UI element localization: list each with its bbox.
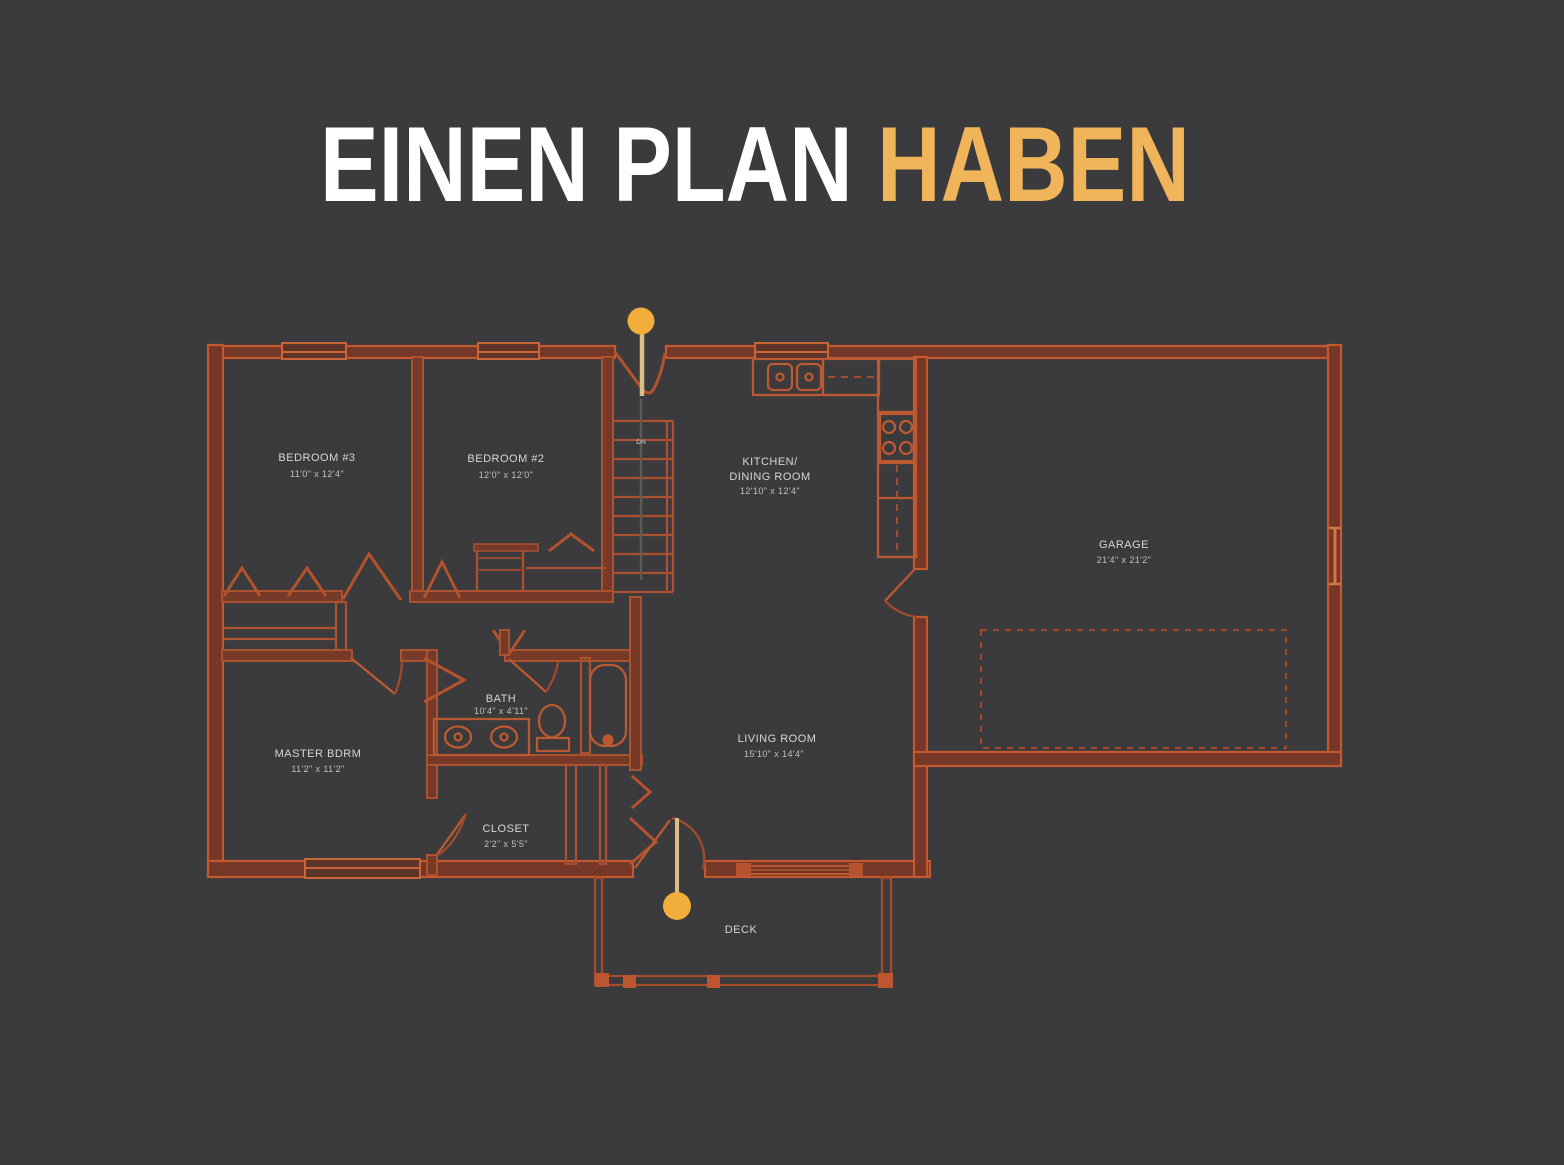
svg-text:GARAGE: GARAGE (1099, 539, 1149, 551)
svg-text:12'10" x 12'4": 12'10" x 12'4" (740, 486, 800, 496)
svg-text:MASTER BDRM: MASTER BDRM (275, 748, 362, 760)
svg-text:10'4" x 4'11": 10'4" x 4'11" (474, 706, 528, 716)
svg-text:BEDROOM #3: BEDROOM #3 (278, 452, 355, 464)
svg-text:12'0" x 12'0": 12'0" x 12'0" (479, 470, 534, 480)
svg-text:LIVING ROOM: LIVING ROOM (738, 733, 817, 745)
svg-text:BATH: BATH (486, 693, 517, 705)
svg-text:CLOSET: CLOSET (482, 823, 529, 835)
svg-text:2'2" x 5'5": 2'2" x 5'5" (484, 839, 528, 849)
svg-text:DN: DN (636, 439, 646, 446)
svg-text:KITCHEN/: KITCHEN/ (742, 456, 798, 468)
svg-text:BEDROOM #2: BEDROOM #2 (467, 453, 544, 465)
svg-text:21'4" x 21'2": 21'4" x 21'2" (1097, 555, 1152, 565)
svg-text:15'10" x 14'4": 15'10" x 14'4" (744, 749, 804, 759)
svg-text:DECK: DECK (725, 924, 758, 936)
svg-text:DINING ROOM: DINING ROOM (729, 471, 810, 483)
svg-text:11'2" x 11'2": 11'2" x 11'2" (291, 764, 344, 774)
svg-text:11'0" x 12'4": 11'0" x 12'4" (290, 469, 344, 479)
